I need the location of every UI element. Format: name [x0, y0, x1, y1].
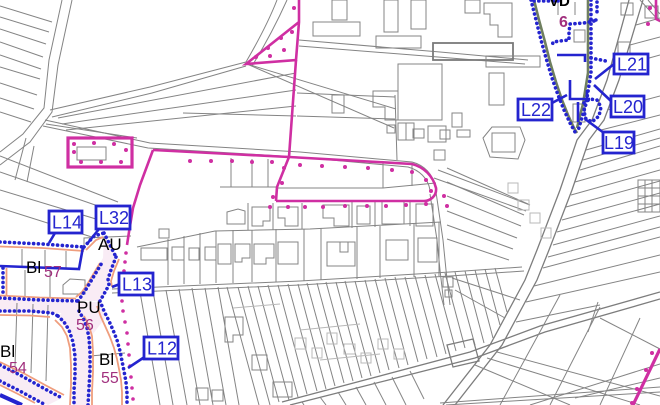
svg-text:L19: L19 [604, 133, 634, 153]
svg-text:L20: L20 [613, 97, 643, 117]
svg-text:L21: L21 [617, 55, 647, 75]
svg-text:L22: L22 [521, 100, 551, 120]
svg-text:Bl: Bl [99, 350, 114, 369]
svg-text:PU: PU [77, 298, 101, 317]
svg-text:Bl: Bl [0, 342, 15, 361]
svg-text:L12: L12 [147, 339, 177, 359]
svg-text:L13: L13 [122, 275, 152, 295]
svg-text:L14: L14 [52, 213, 82, 233]
svg-text:6: 6 [559, 14, 568, 31]
svg-text:57: 57 [44, 264, 62, 281]
svg-text:L32: L32 [99, 208, 129, 228]
svg-text:56: 56 [76, 317, 94, 334]
svg-text:55: 55 [101, 370, 119, 387]
svg-text:VD: VD [549, 0, 570, 10]
svg-text:AU: AU [98, 235, 122, 254]
svg-text:Bl: Bl [26, 258, 41, 277]
svg-text:54: 54 [9, 360, 27, 377]
